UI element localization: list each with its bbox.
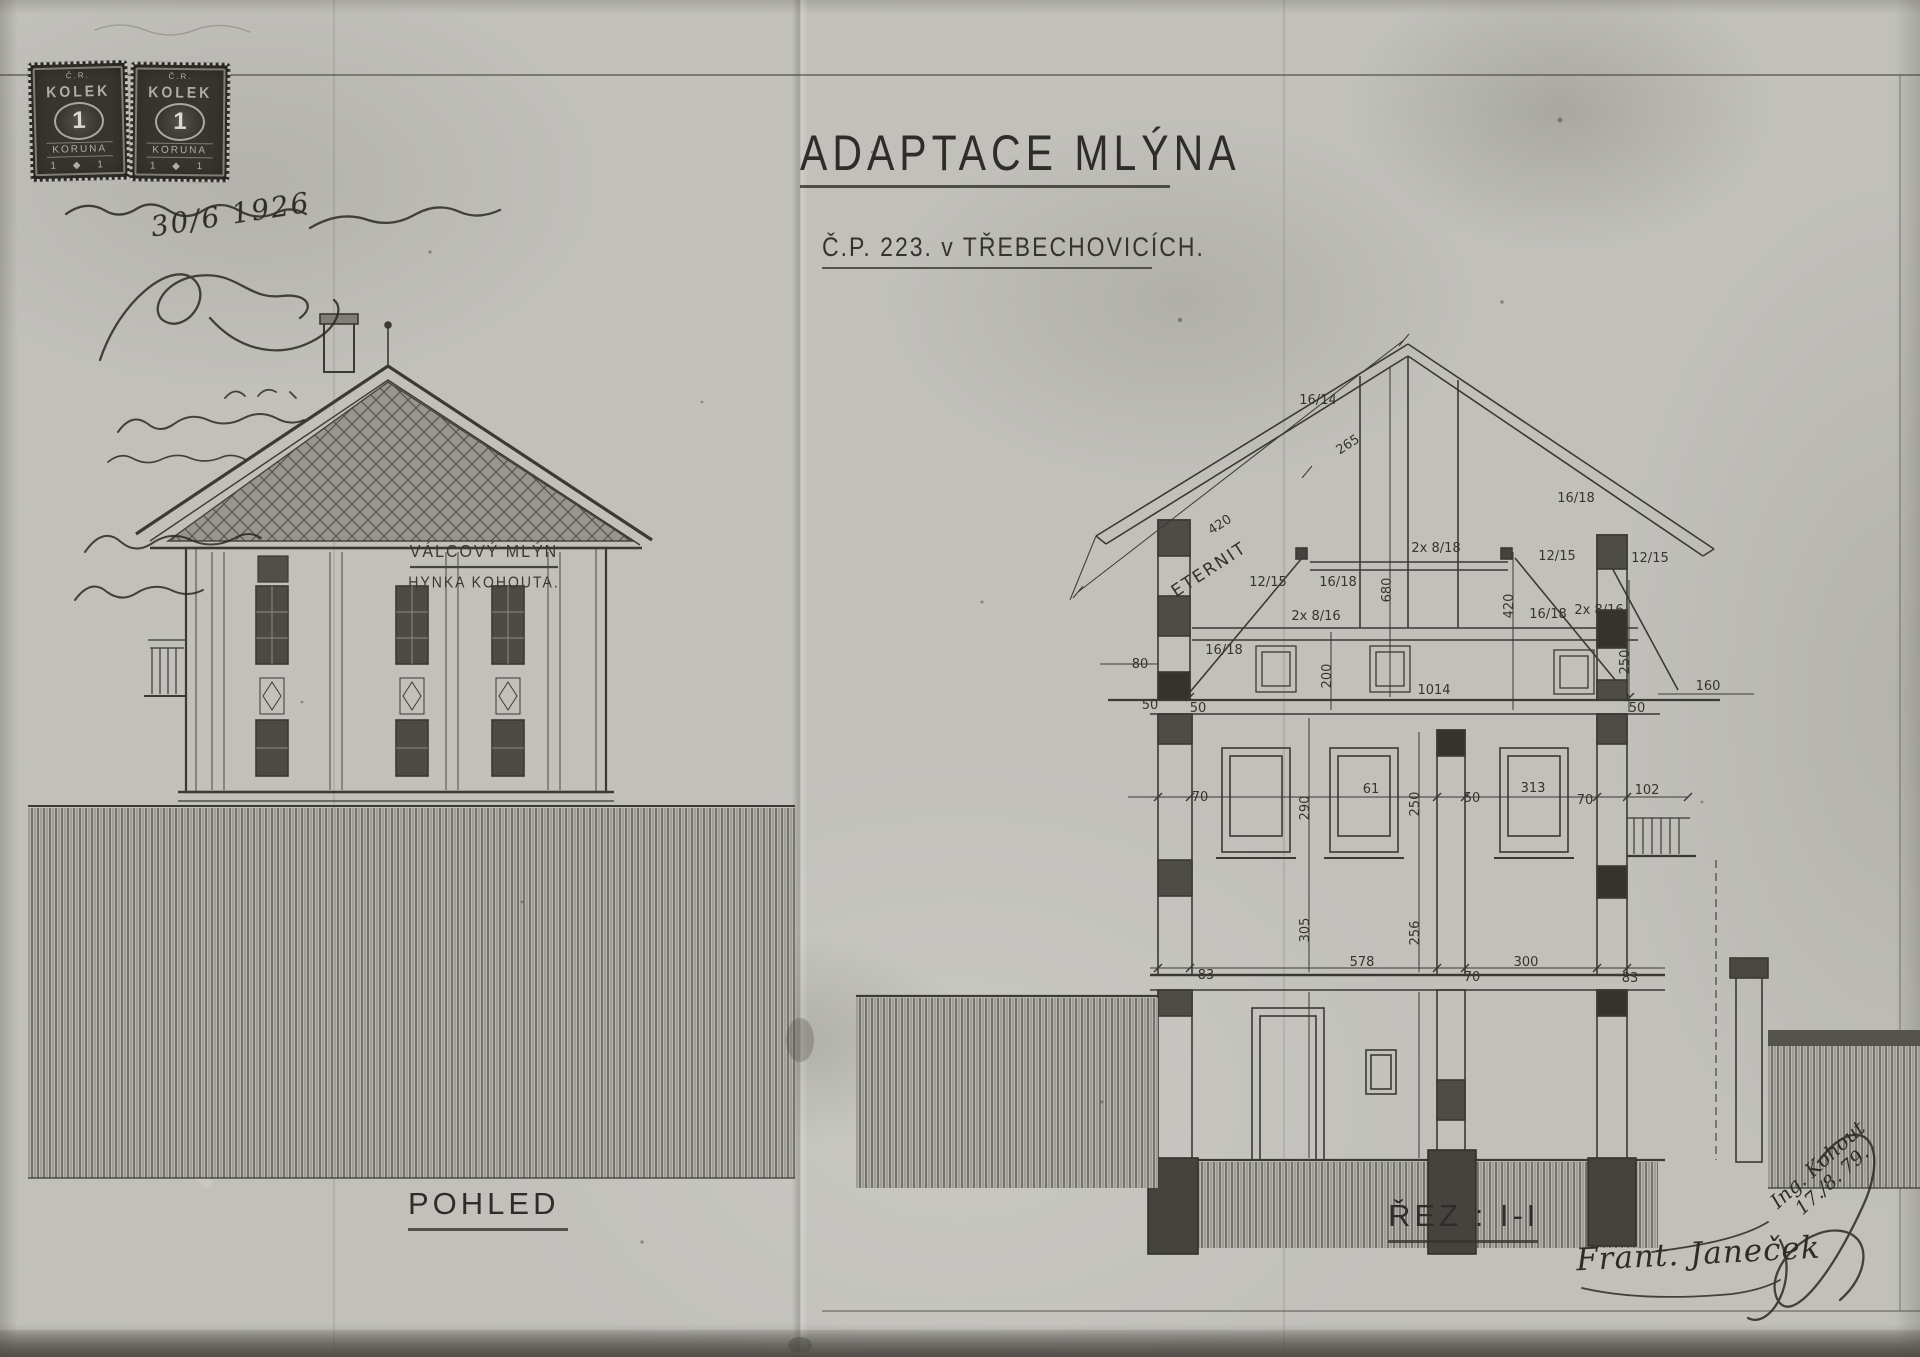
mill-plaque: VÁLCOVÝ MLÝN HYNKA KOHOUTA. [396,544,572,590]
approval-scrawl [310,207,500,228]
section-balcony [1627,818,1696,856]
lower-windows [256,720,524,776]
attic-window [258,556,288,582]
dimension-label: 83 [1198,968,1215,983]
dimension-label: 50 [1464,791,1481,806]
plaque-line-1: VÁLCOVÝ MLÝN [410,543,558,568]
dimension-label: 420 [1206,512,1235,538]
dimension-label: 680 [1380,578,1395,603]
dimension-label: 70 [1464,970,1481,985]
dimension-label: 256 [1408,921,1423,946]
title-underline [800,185,1170,188]
elevation-label: POHLED [408,1186,559,1221]
elevation-drawing [28,314,795,1178]
dimension-label: 102 [1635,783,1660,798]
pencil-note [95,25,250,35]
dimension-label: 61 [1363,782,1380,797]
dimension-label: 12/15 [1631,551,1668,566]
section-label-underline [1388,1240,1538,1243]
ornament-panels [260,678,520,714]
signature-underline [1582,1280,1780,1297]
dimension-label: 16/18 [1319,575,1356,590]
dimension-label: 50 [1142,698,1159,713]
dimension-label: 16/18 [1557,491,1594,506]
signature-scribble [210,300,338,350]
scanned-blueprint-page: Č.R. KOLEK 1 KORUNA 1 ◆ 1 Č.R. KOLEK 1 K… [0,0,1920,1357]
subtitle-block: Č.P. 223. v TŘEBECHOVICÍCH. [822,234,1152,269]
plaque-line-2: HYNKA KOHOUTA. [396,573,572,591]
page-subtitle: Č.P. 223. v TŘEBECHOVICÍCH. [822,232,1205,263]
dimension-label: 70 [1192,790,1209,805]
dimension-label: 313 [1521,781,1546,796]
gable-roof [136,366,652,548]
dimension-label: 265 [1334,432,1363,458]
signature-scribble [108,455,246,462]
signature-initials [225,390,296,398]
dimension-label: 300 [1514,955,1539,970]
title-block: ADAPTACE MLÝNA [800,130,1170,188]
dimension-label: 50 [1629,701,1646,716]
dimension-label: 250 [1408,792,1423,817]
dimension-label: 16/18 [1205,643,1242,658]
section-chimney [1730,958,1768,1162]
dimension-label: 160 [1696,679,1721,694]
tall-windows [256,586,524,664]
dimension-label: 16/14 [1299,393,1336,408]
section-label: ŘEZ : I-I [1388,1198,1539,1233]
elevation-label-block: POHLED [408,1186,568,1231]
dimension-label: 290 [1298,796,1313,821]
dimension-lines [1070,334,1754,1158]
dimension-label: 12/15 [1249,575,1286,590]
ground-floor [1158,990,1627,1160]
dimension-label: 578 [1350,955,1375,970]
section-drawing: 265420ETERNIT16/1412/1516/182x 8/1616/18… [856,334,1920,1254]
dimension-label: 1014 [1417,683,1450,698]
witness-signature [75,587,203,600]
dimension-label: 70 [1577,793,1594,808]
balcony [144,640,186,696]
signature-scribble [100,274,308,360]
chimney [320,314,391,372]
dimension-label: 250 [1618,650,1633,675]
dimension-label: 16/18 [1529,607,1566,622]
dimension-label: 200 [1320,664,1335,689]
dimension-label: 420 [1502,594,1517,619]
dimension-label: 50 [1190,701,1207,716]
dimension-label: 12/15 [1538,549,1575,564]
dimension-label: 2x 8/16 [1574,603,1623,618]
dimension-label: 305 [1298,918,1313,943]
elevation-label-underline [408,1228,568,1231]
dimension-label: 83 [1622,971,1639,986]
elevation-ground [28,806,795,1178]
dimension-label: 80 [1132,657,1149,672]
dimension-label: 2x 8/16 [1291,609,1340,624]
section-label-block: ŘEZ : I-I [1388,1198,1539,1243]
subtitle-underline [822,267,1152,269]
signature-scribble [118,414,304,432]
dimension-label: 2x 8/18 [1411,541,1460,556]
page-title: ADAPTACE MLÝNA [800,125,1241,182]
